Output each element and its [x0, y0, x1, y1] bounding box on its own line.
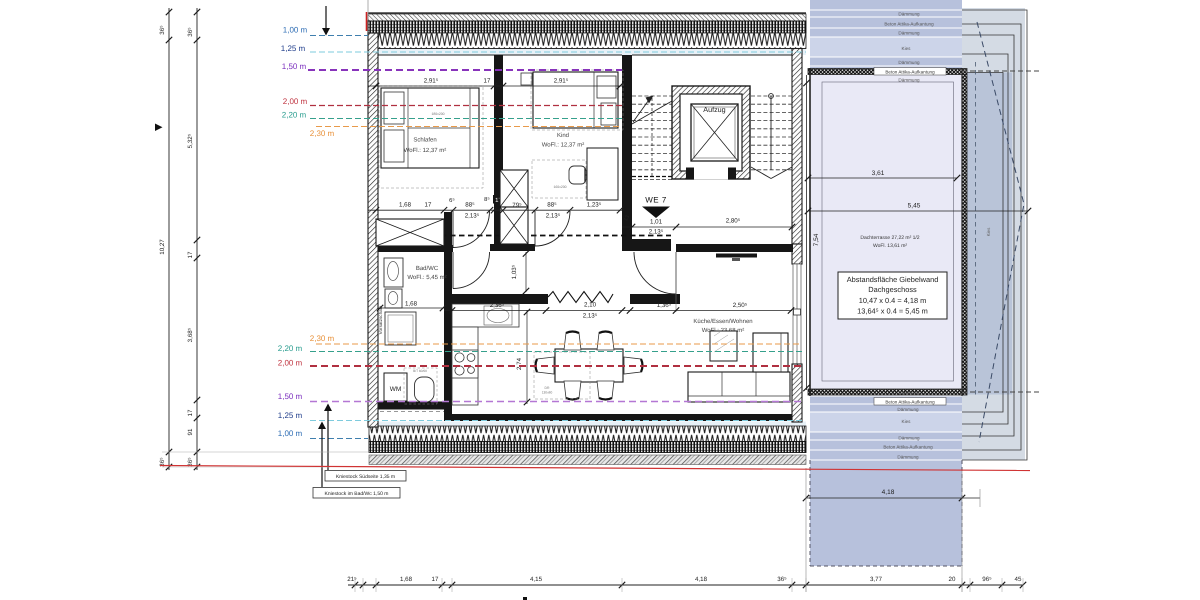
svg-text:2,13⁵: 2,13⁵	[546, 213, 561, 220]
svg-text:Bad/WC: Bad/WC	[416, 265, 439, 272]
svg-text:17: 17	[484, 78, 491, 85]
svg-text:2,13⁵: 2,13⁵	[649, 229, 664, 236]
svg-text:Küche/Essen/Wohnen: Küche/Essen/Wohnen	[693, 318, 752, 325]
svg-text:WM: WM	[390, 386, 402, 393]
svg-text:2,10: 2,10	[584, 302, 597, 309]
svg-text:2,80⁵: 2,80⁵	[726, 218, 741, 225]
svg-text:Kies: Kies	[902, 46, 912, 51]
svg-text:3,77: 3,77	[870, 576, 883, 583]
svg-text:Dämmung: Dämmung	[898, 436, 920, 441]
svg-text:Kniestock Südseite 1,35 m: Kniestock Südseite 1,35 m	[336, 474, 395, 480]
svg-text:Dämmung: Dämmung	[897, 455, 919, 460]
svg-text:3,68⁵: 3,68⁵	[187, 327, 194, 342]
svg-text:160x200: 160x200	[553, 185, 566, 189]
svg-text:Dachterrasse 27,22 m² 1/2: Dachterrasse 27,22 m² 1/2	[860, 235, 919, 241]
svg-text:2,91⁵: 2,91⁵	[554, 78, 569, 85]
svg-text:180x200: 180x200	[431, 112, 444, 116]
svg-text:Kies: Kies	[986, 227, 991, 237]
svg-text:1,68: 1,68	[400, 576, 413, 583]
svg-text:2,00 m: 2,00 m	[283, 97, 308, 106]
svg-text:17: 17	[432, 576, 439, 583]
svg-text:2,13⁵: 2,13⁵	[583, 313, 598, 320]
svg-text:13,64⁵ x 0.4 = 5,45 m: 13,64⁵ x 0.4 = 5,45 m	[857, 307, 928, 316]
svg-text:2,20 m: 2,20 m	[278, 344, 303, 353]
svg-text:1,23⁵: 1,23⁵	[587, 202, 602, 209]
svg-text:17: 17	[425, 202, 432, 209]
svg-text:79⁵: 79⁵	[512, 202, 522, 209]
svg-text:2,30 m: 2,30 m	[310, 334, 335, 343]
svg-text:45: 45	[1015, 576, 1022, 583]
svg-text:Schlafen: Schlafen	[413, 137, 436, 144]
svg-text:Dämmung: Dämmung	[898, 12, 920, 17]
svg-text:Beton Attika-Aufkantung: Beton Attika-Aufkantung	[885, 400, 935, 405]
svg-text:1,00 m: 1,00 m	[278, 429, 303, 438]
svg-text:Beton Attika-Aufkantung: Beton Attika-Aufkantung	[885, 70, 935, 75]
svg-text:10,27: 10,27	[159, 239, 166, 255]
svg-text:2,91⁵: 2,91⁵	[424, 78, 439, 85]
svg-text:4,18: 4,18	[882, 489, 895, 496]
svg-text:1,00 m: 1,00 m	[283, 26, 308, 35]
svg-text:WE 7: WE 7	[645, 196, 667, 205]
svg-text:Abstandsfläche Giebelwand: Abstandsfläche Giebelwand	[847, 275, 939, 284]
svg-text:1,68: 1,68	[405, 301, 418, 308]
svg-text:DR: DR	[545, 386, 550, 390]
svg-text:Kind: Kind	[557, 132, 569, 139]
svg-text:4,15: 4,15	[530, 576, 543, 583]
svg-text:1,50 m: 1,50 m	[278, 392, 303, 401]
svg-text:2,30 m: 2,30 m	[310, 129, 335, 138]
svg-text:Dämmung: Dämmung	[898, 60, 920, 65]
svg-text:Vorsatzschale: Vorsatzschale	[378, 305, 383, 334]
svg-text:88⁵: 88⁵	[547, 202, 557, 209]
svg-text:Dämmung: Dämmung	[898, 31, 920, 36]
svg-text:17: 17	[187, 409, 194, 416]
svg-text:1,03⁵: 1,03⁵	[511, 264, 518, 279]
svg-text:WoFl.: 5,45 m²: WoFl.: 5,45 m²	[407, 274, 446, 281]
svg-text:2,00 m: 2,00 m	[278, 359, 303, 368]
svg-text:Beton Attika-Aufkantung: Beton Attika-Aufkantung	[884, 22, 934, 27]
svg-text:36⁵: 36⁵	[159, 25, 166, 35]
svg-text:Dachgeschoss: Dachgeschoss	[868, 285, 917, 294]
svg-text:2,13⁵: 2,13⁵	[465, 213, 480, 220]
svg-text:1,68: 1,68	[399, 202, 412, 209]
svg-text:Kies: Kies	[902, 419, 912, 424]
svg-text:88⁵: 88⁵	[465, 202, 475, 209]
svg-text:2,50⁵: 2,50⁵	[733, 302, 748, 309]
svg-text:2,36⁵: 2,36⁵	[490, 302, 505, 309]
svg-text:2,74: 2,74	[516, 357, 523, 370]
svg-text:4,18: 4,18	[695, 576, 708, 583]
svg-text:3,61: 3,61	[872, 170, 885, 177]
svg-text:8⁵: 8⁵	[484, 196, 490, 203]
svg-text:Aufzug: Aufzug	[703, 105, 725, 114]
svg-text:Beton Attika-Aufkantung: Beton Attika-Aufkantung	[883, 445, 933, 450]
svg-text:5,32⁵: 5,32⁵	[187, 133, 194, 148]
svg-text:2,20 m: 2,20 m	[282, 111, 307, 120]
svg-text:96⁵: 96⁵	[982, 576, 992, 583]
svg-text:7,54: 7,54	[813, 233, 820, 246]
svg-text:1,36⁵: 1,36⁵	[657, 302, 672, 309]
svg-text:1,01: 1,01	[650, 219, 663, 226]
svg-text:WoFl.: 12,37 m²: WoFl.: 12,37 m²	[404, 147, 447, 154]
svg-text:130x80: 130x80	[542, 391, 553, 395]
svg-text:10,47 x 0.4 = 4,18 m: 10,47 x 0.4 = 4,18 m	[859, 296, 927, 305]
svg-text:1,25 m: 1,25 m	[281, 44, 306, 53]
svg-text:6⁵: 6⁵	[449, 197, 455, 204]
svg-text:Dämmung: Dämmung	[898, 391, 920, 396]
svg-text:20: 20	[949, 576, 956, 583]
svg-text:36⁵: 36⁵	[187, 27, 194, 37]
svg-text:1,25 m: 1,25 m	[278, 411, 303, 420]
svg-text:5,45: 5,45	[908, 203, 921, 210]
svg-text:21⁵: 21⁵	[347, 576, 357, 583]
svg-text:Kniestock im Bad/Wc 1,50 m: Kniestock im Bad/Wc 1,50 m	[325, 491, 389, 497]
svg-text:36⁵: 36⁵	[777, 576, 787, 583]
svg-text:Dämmung: Dämmung	[897, 407, 919, 412]
svg-text:91: 91	[187, 428, 194, 435]
svg-text:WoFl.: 12,37 m²: WoFl.: 12,37 m²	[542, 142, 585, 149]
svg-text:B/T 60/60: B/T 60/60	[413, 369, 427, 373]
svg-text:Dämmung: Dämmung	[898, 78, 920, 83]
svg-text:1,50 m: 1,50 m	[282, 62, 307, 71]
svg-text:WoFl. 13,61 m²: WoFl. 13,61 m²	[873, 243, 907, 249]
svg-text:17: 17	[187, 251, 194, 258]
